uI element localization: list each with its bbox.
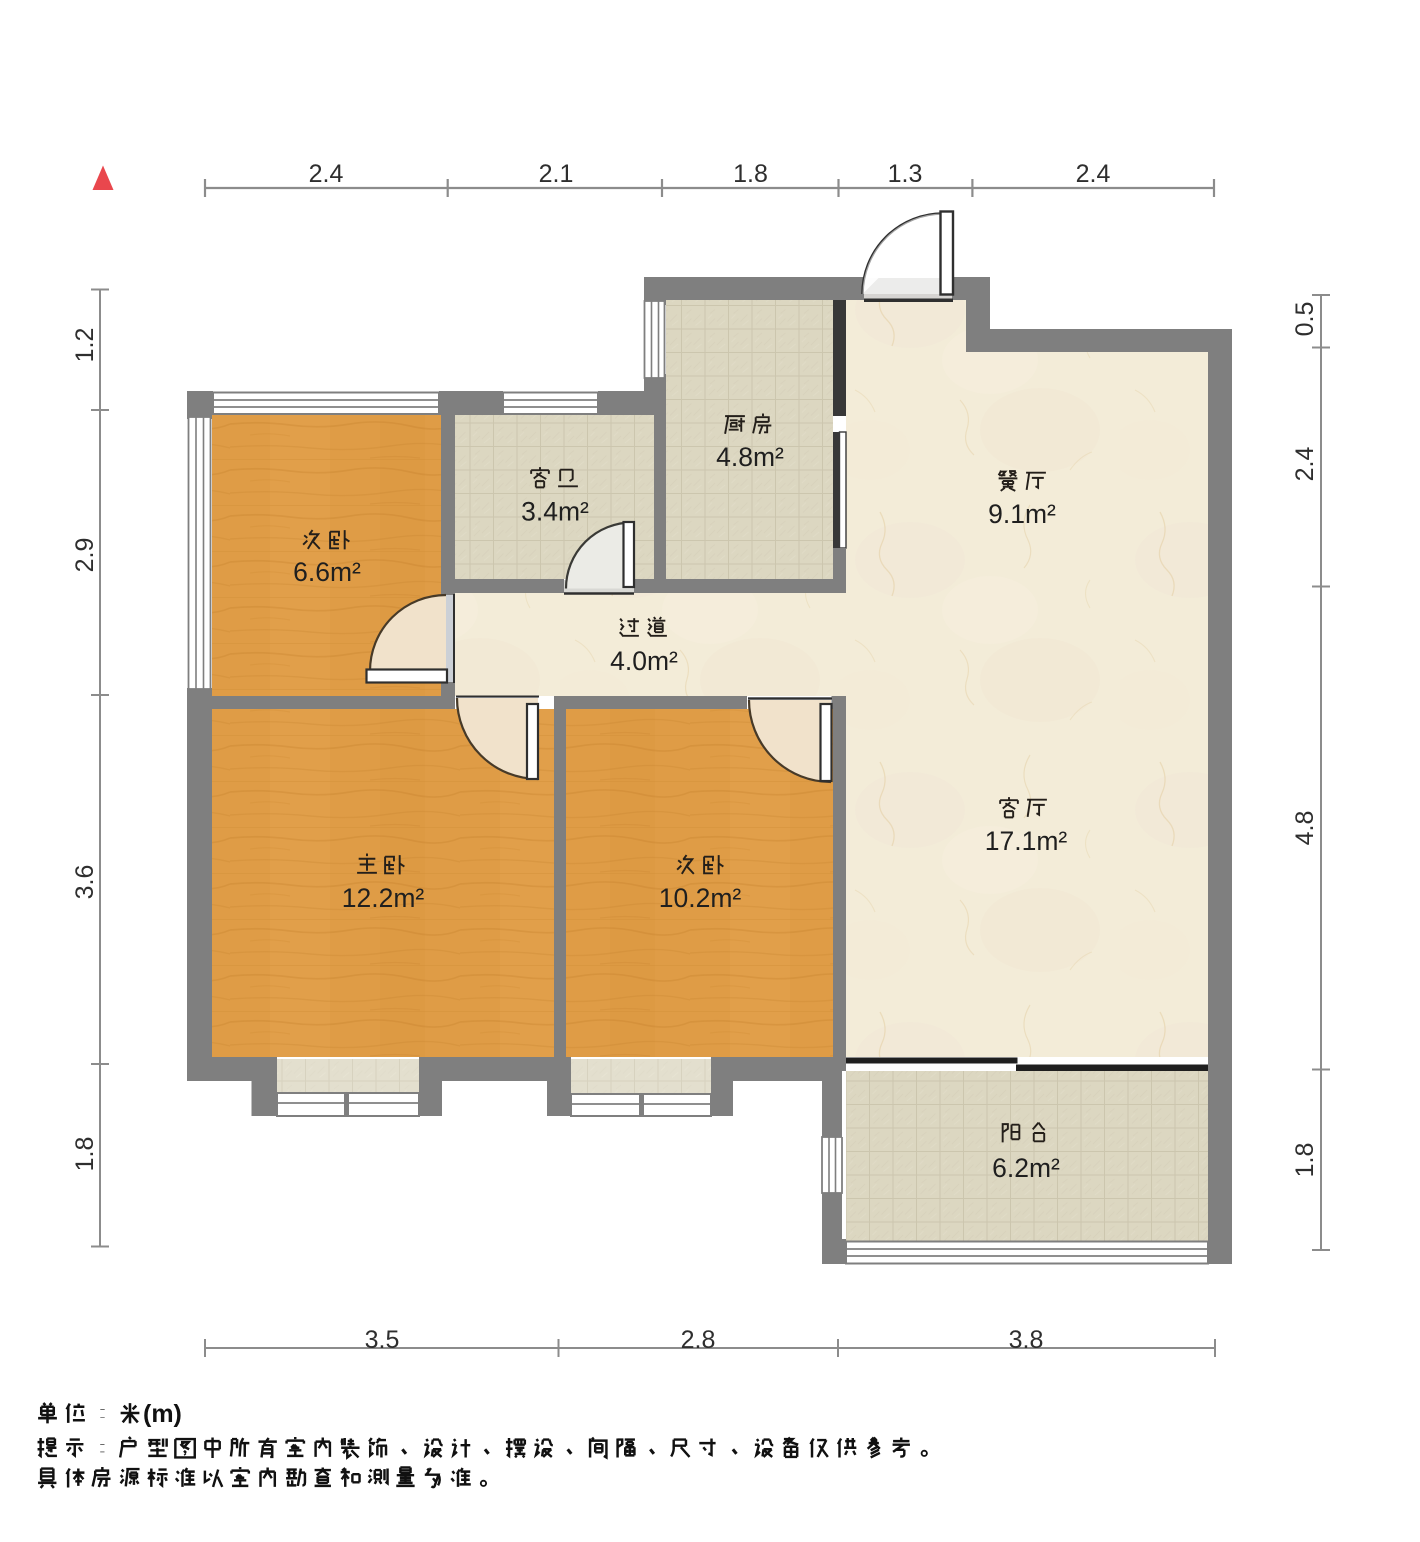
svg-text:1.2: 1.2 [71, 328, 99, 363]
svg-text:(m): (m) [143, 1400, 182, 1428]
svg-text:12.2m²: 12.2m² [342, 883, 425, 913]
svg-text:3.5: 3.5 [365, 1326, 400, 1354]
svg-text:4.8m²: 4.8m² [716, 442, 784, 472]
svg-text:3.6: 3.6 [71, 865, 99, 900]
svg-text:4.8: 4.8 [1291, 811, 1319, 846]
svg-text:6.2m²: 6.2m² [992, 1153, 1060, 1183]
svg-text:9.1m²: 9.1m² [988, 499, 1056, 529]
svg-text:2.4: 2.4 [1076, 160, 1111, 188]
svg-text:2.9: 2.9 [71, 538, 99, 573]
svg-text:1.8: 1.8 [733, 160, 768, 188]
svg-text:4.0m²: 4.0m² [610, 646, 678, 676]
svg-text:1.3: 1.3 [888, 160, 923, 188]
svg-text:2.8: 2.8 [681, 1326, 716, 1354]
svg-text:0.5: 0.5 [1291, 302, 1319, 337]
svg-text:3.4m²: 3.4m² [521, 497, 589, 527]
svg-text:2.1: 2.1 [539, 160, 574, 188]
svg-text:2.4: 2.4 [309, 160, 344, 188]
svg-text:3.8: 3.8 [1009, 1326, 1044, 1354]
svg-text:6.6m²: 6.6m² [293, 557, 361, 587]
svg-text:1.8: 1.8 [71, 1137, 99, 1172]
svg-text:17.1m²: 17.1m² [985, 826, 1068, 856]
svg-text:1.8: 1.8 [1291, 1143, 1319, 1178]
svg-text:2.4: 2.4 [1291, 447, 1319, 482]
svg-text:10.2m²: 10.2m² [659, 883, 742, 913]
